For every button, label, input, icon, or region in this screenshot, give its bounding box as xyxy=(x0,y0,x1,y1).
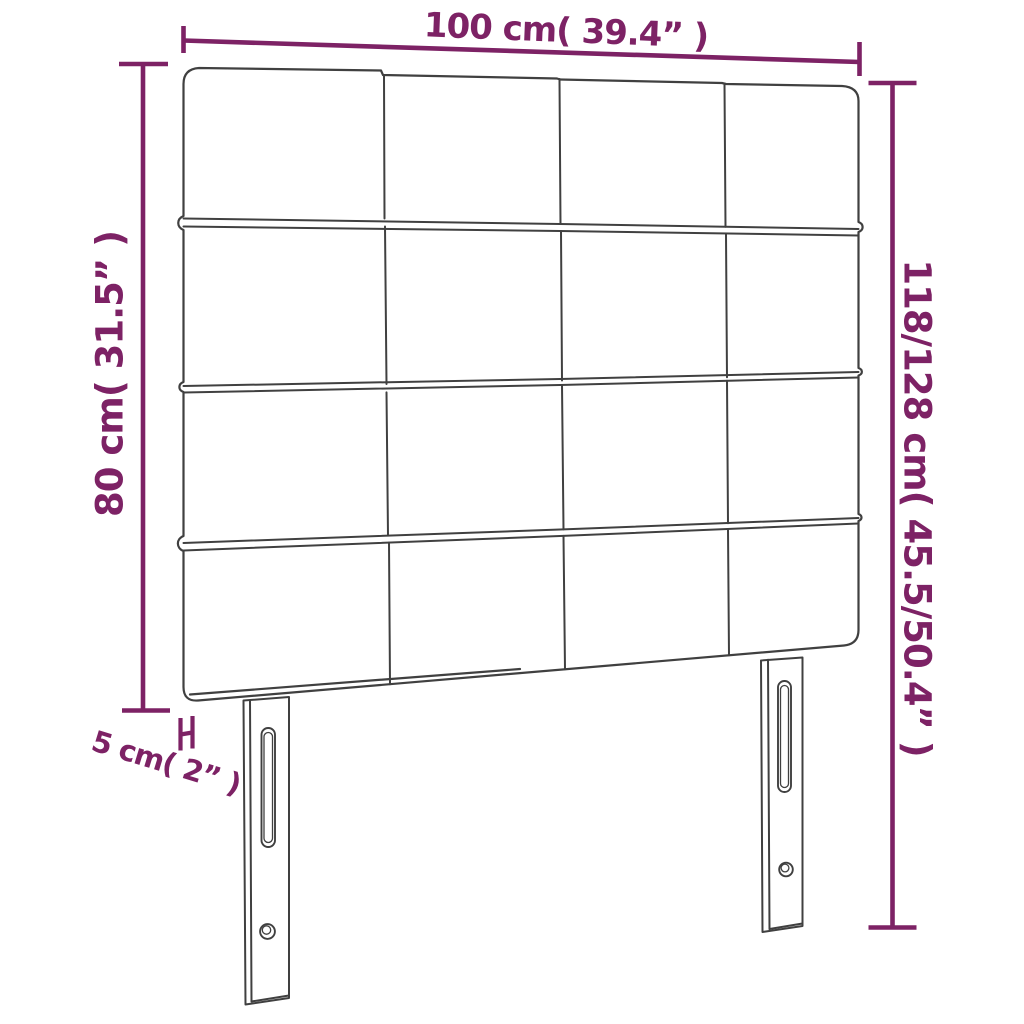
leg-left xyxy=(244,697,290,1005)
leg-left-slot xyxy=(262,728,276,847)
leg-right-screw-hole xyxy=(779,863,793,877)
leg-left-screw-hole xyxy=(260,924,275,939)
height-left-dimension-label: 80 cm( 31.5” ) xyxy=(92,231,129,517)
width-dimension-label: 100 cm( 39.4” ) xyxy=(423,8,709,53)
headboard-drawing xyxy=(0,0,1024,1024)
height-right-dimension-label: 118/128 cm( 45.5/50.4” ) xyxy=(899,259,936,756)
depth-dimension-marker xyxy=(181,716,193,751)
leg-right xyxy=(761,658,803,933)
leg-right-slot xyxy=(778,681,791,792)
product-dimension-diagram: 100 cm( 39.4” ) 80 cm( 31.5” ) 118/128 c… xyxy=(0,0,1024,1024)
headboard-body xyxy=(178,68,863,701)
